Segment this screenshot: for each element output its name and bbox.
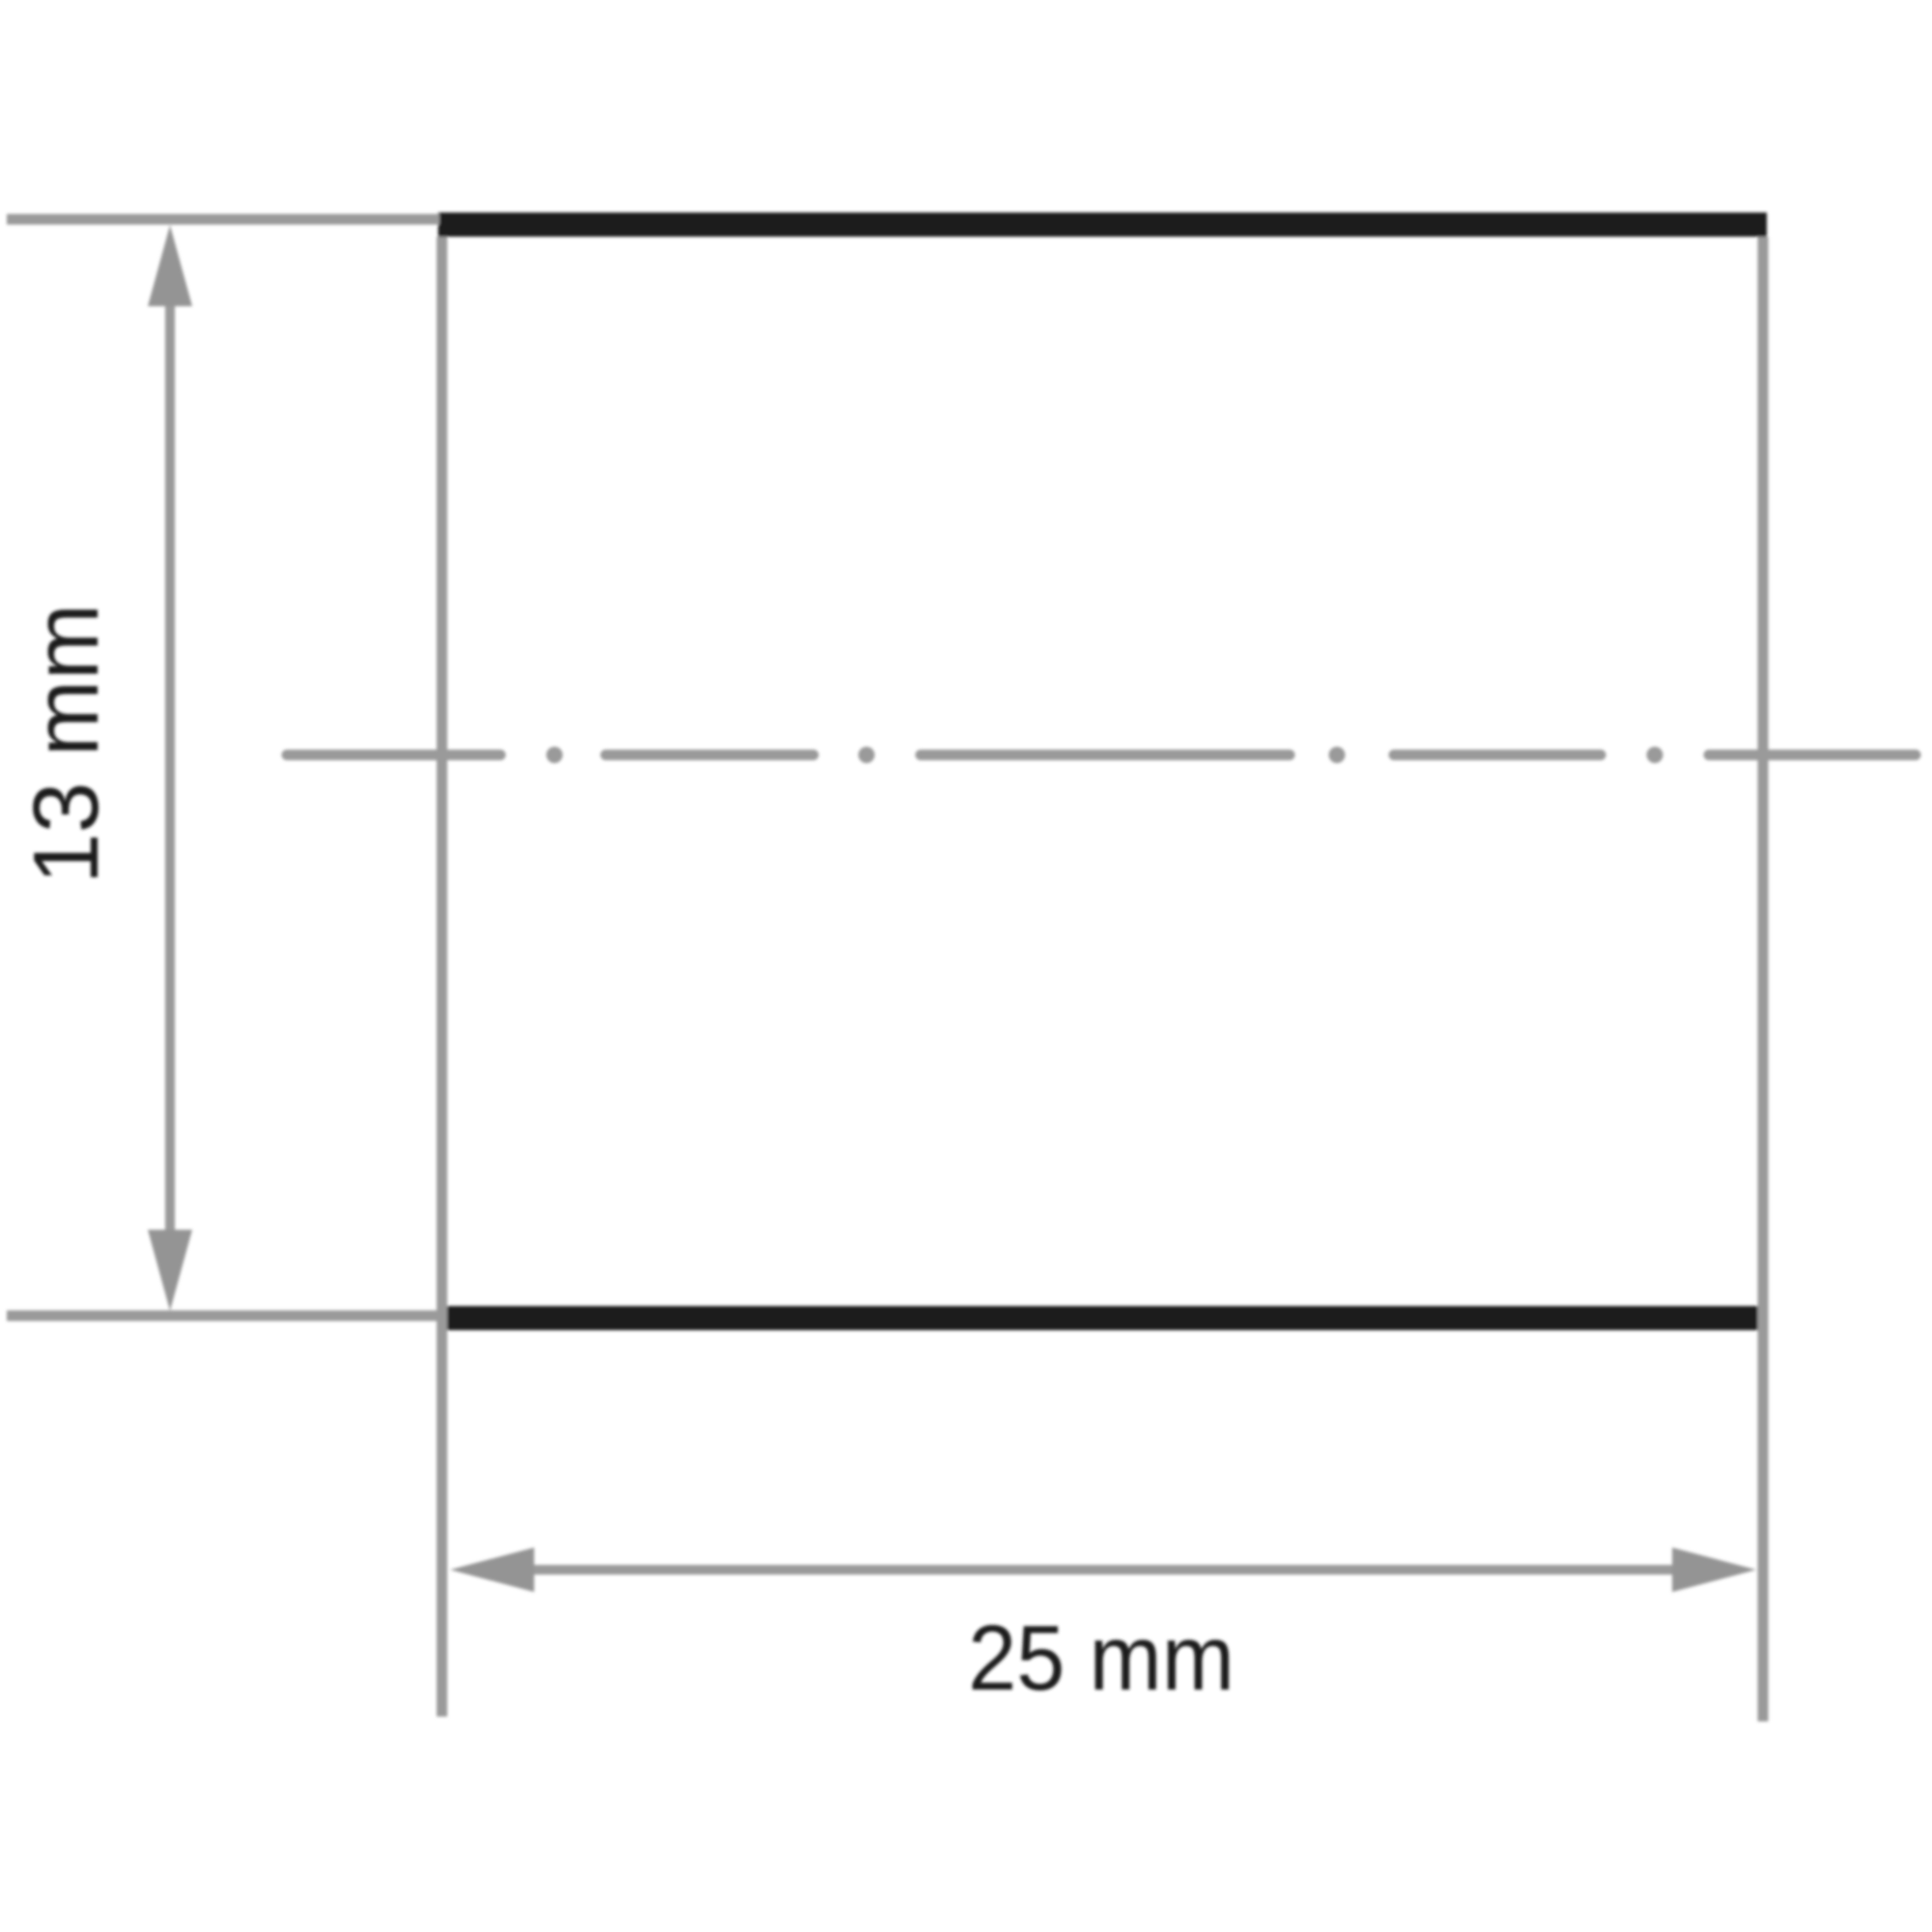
svg-text:13 mm: 13 mm: [15, 604, 119, 884]
svg-text:25 mm: 25 mm: [968, 1605, 1235, 1709]
